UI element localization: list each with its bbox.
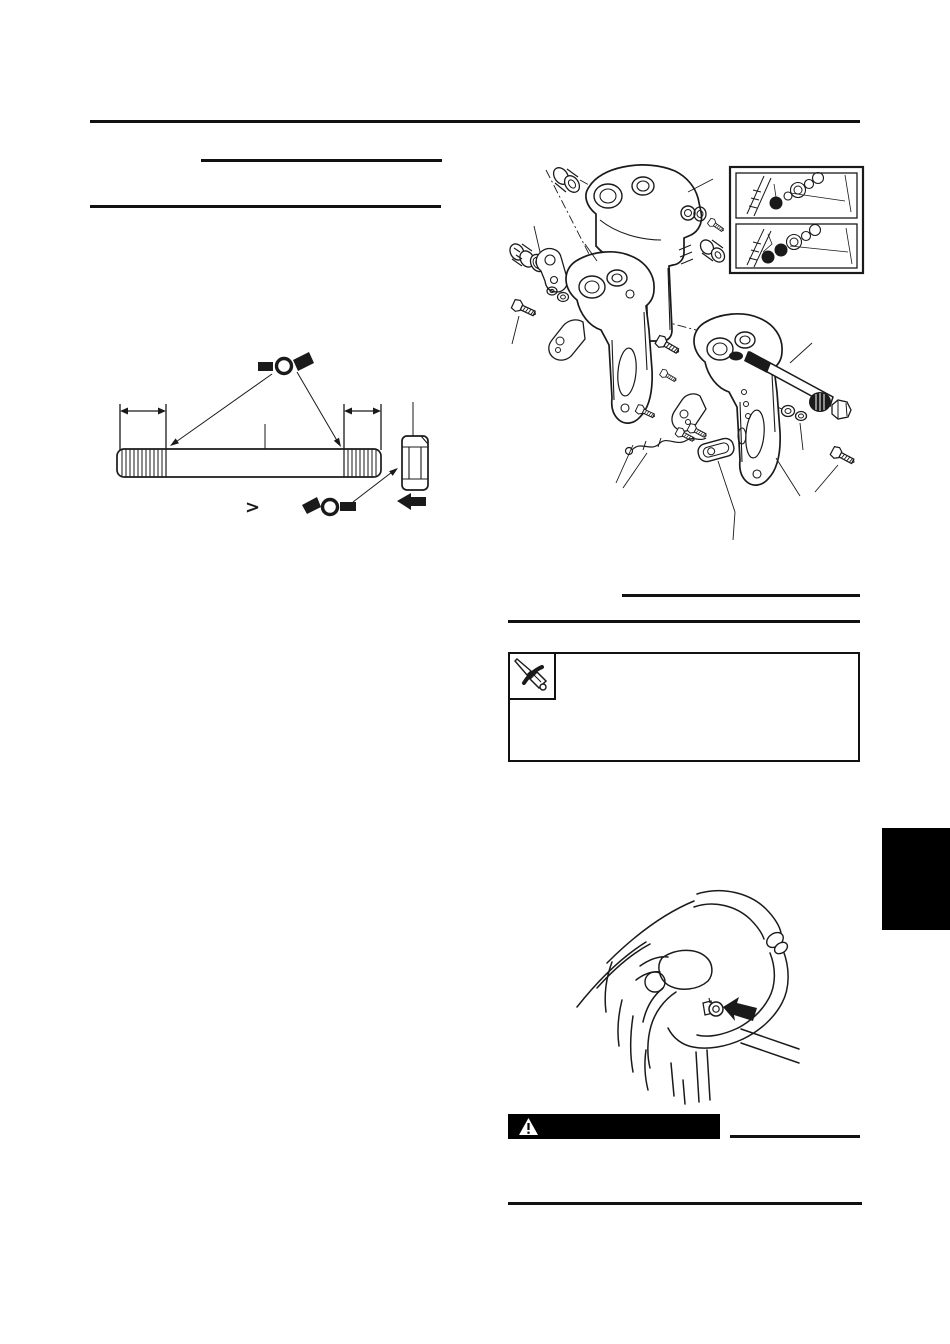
warning-banner [508, 1114, 720, 1139]
figure-threaded-rod: > [100, 350, 450, 530]
screwdriver-icon [510, 654, 554, 698]
solid-left-arrow-icon [397, 493, 426, 510]
dimension-left [120, 404, 166, 450]
grease-applicator-icon [302, 497, 356, 515]
arrowhead [389, 468, 398, 476]
cowling-line-art [577, 891, 799, 1104]
leader-line [297, 372, 339, 444]
warning-triangle-icon [518, 1117, 539, 1136]
anode-drawing [696, 437, 735, 464]
title-underline [201, 159, 442, 162]
left-column-divider [90, 205, 441, 208]
subheading-rule [730, 1135, 860, 1138]
manual-page: > [0, 0, 950, 1344]
inset-detail-boxes [730, 167, 863, 273]
section-title-underline [622, 594, 860, 597]
bushing-drawing [551, 165, 583, 195]
fitting-drawing [703, 930, 790, 1016]
solid-left-arrow-icon [723, 997, 757, 1021]
arrowhead [334, 438, 341, 447]
arrowhead [170, 438, 179, 446]
figure-engine-fitting [558, 878, 803, 1113]
tool-note-box [508, 652, 860, 762]
leader-line [173, 374, 272, 444]
locknut-drawing [402, 402, 428, 490]
top-rule [90, 120, 860, 123]
stud-bolt-drawing [117, 424, 381, 477]
grease-applicator-icon [258, 352, 314, 374]
dimension-right [344, 404, 381, 450]
washer-stack-drawing [507, 241, 568, 301]
bolt-drawing [511, 298, 538, 319]
chapter-tab [882, 828, 950, 930]
note-icon-cell [510, 654, 556, 700]
knob-drawing [645, 972, 665, 992]
section-divider [508, 620, 860, 623]
comparison-symbol: > [245, 497, 260, 518]
starboard-clamp-bracket-drawing [672, 314, 782, 485]
figure-exploded-clamp-bracket [500, 145, 950, 565]
bottom-rule [508, 1202, 862, 1205]
